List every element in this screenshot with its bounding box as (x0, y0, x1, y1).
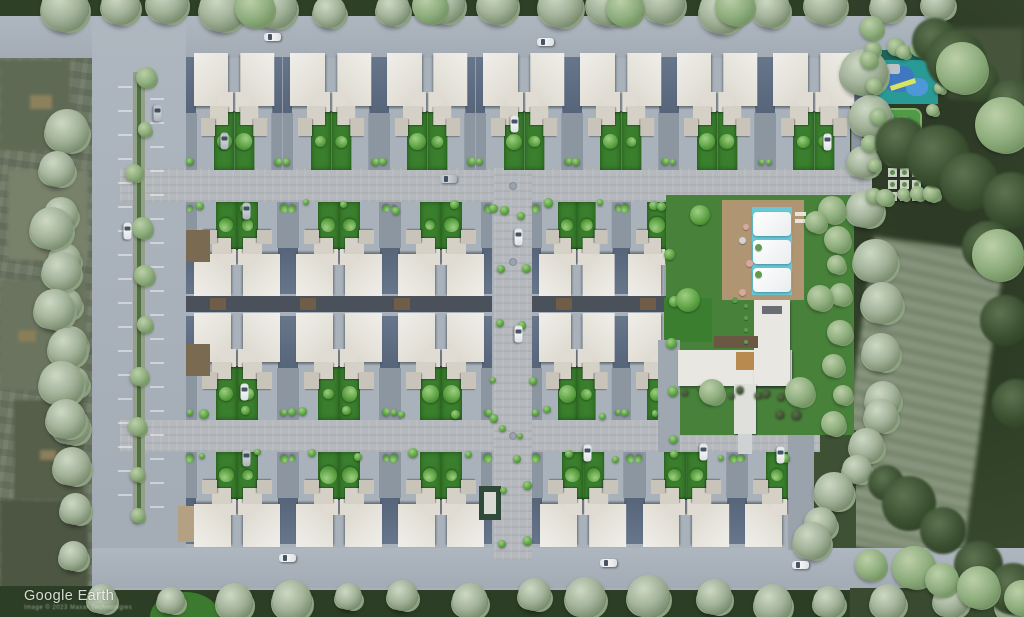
car (537, 38, 554, 46)
car-windshield (516, 330, 522, 334)
google-earth-watermark: Google Earth Image © 2023 Maxar Technolo… (24, 588, 132, 611)
car (584, 445, 592, 462)
car-windshield (242, 388, 248, 392)
car (792, 561, 809, 569)
car (279, 554, 296, 562)
car-windshield (125, 227, 131, 231)
cars-layer (0, 0, 1024, 617)
car (511, 116, 519, 133)
car (264, 33, 281, 41)
car-windshield (244, 454, 250, 458)
watermark-title: Google Earth (24, 588, 132, 604)
car-windshield (283, 555, 287, 561)
car (600, 559, 617, 567)
car (824, 134, 832, 151)
car (241, 384, 249, 401)
site-plan-aerial-view: Google Earth Image © 2023 Maxar Technolo… (0, 0, 1024, 617)
car-windshield (604, 560, 608, 566)
car-windshield (244, 207, 250, 211)
car-windshield (825, 138, 831, 142)
car (154, 105, 162, 122)
car-windshield (701, 448, 707, 452)
car (243, 203, 251, 220)
car (243, 450, 251, 467)
car-windshield (268, 34, 272, 40)
car-windshield (541, 39, 545, 45)
car-windshield (778, 451, 784, 455)
watermark-attribution: Image © 2023 Maxar Technologies (24, 605, 132, 611)
car (700, 444, 708, 461)
car-windshield (585, 449, 591, 453)
car-windshield (444, 176, 448, 182)
car-windshield (512, 120, 518, 124)
car (515, 326, 523, 343)
car-windshield (222, 137, 228, 141)
car-windshield (516, 233, 522, 237)
car (221, 133, 229, 150)
car (124, 223, 132, 240)
car-windshield (796, 562, 800, 568)
car (440, 175, 457, 183)
car (515, 229, 523, 246)
car (777, 447, 785, 464)
car-windshield (155, 109, 161, 113)
